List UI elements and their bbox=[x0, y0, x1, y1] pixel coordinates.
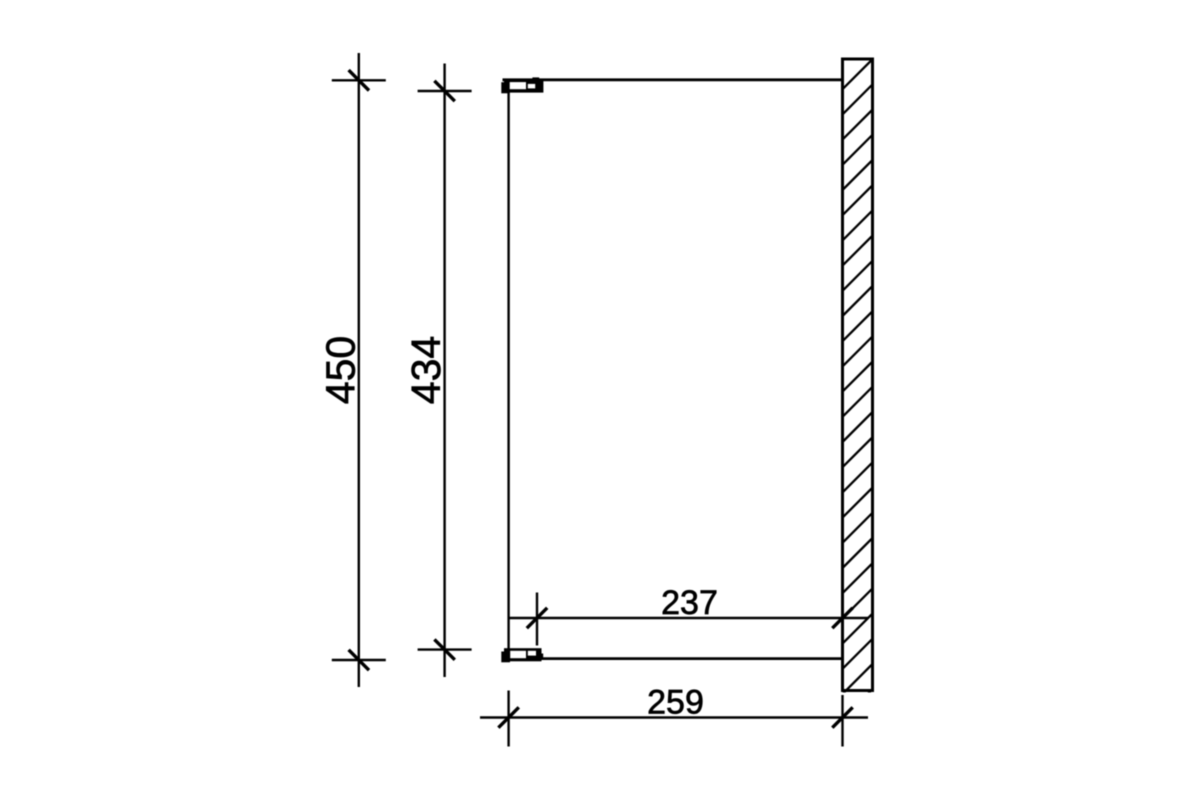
svg-text:450: 450 bbox=[318, 336, 364, 404]
svg-text:237: 237 bbox=[661, 584, 718, 622]
svg-text:434: 434 bbox=[403, 336, 449, 404]
svg-text:259: 259 bbox=[647, 684, 704, 722]
